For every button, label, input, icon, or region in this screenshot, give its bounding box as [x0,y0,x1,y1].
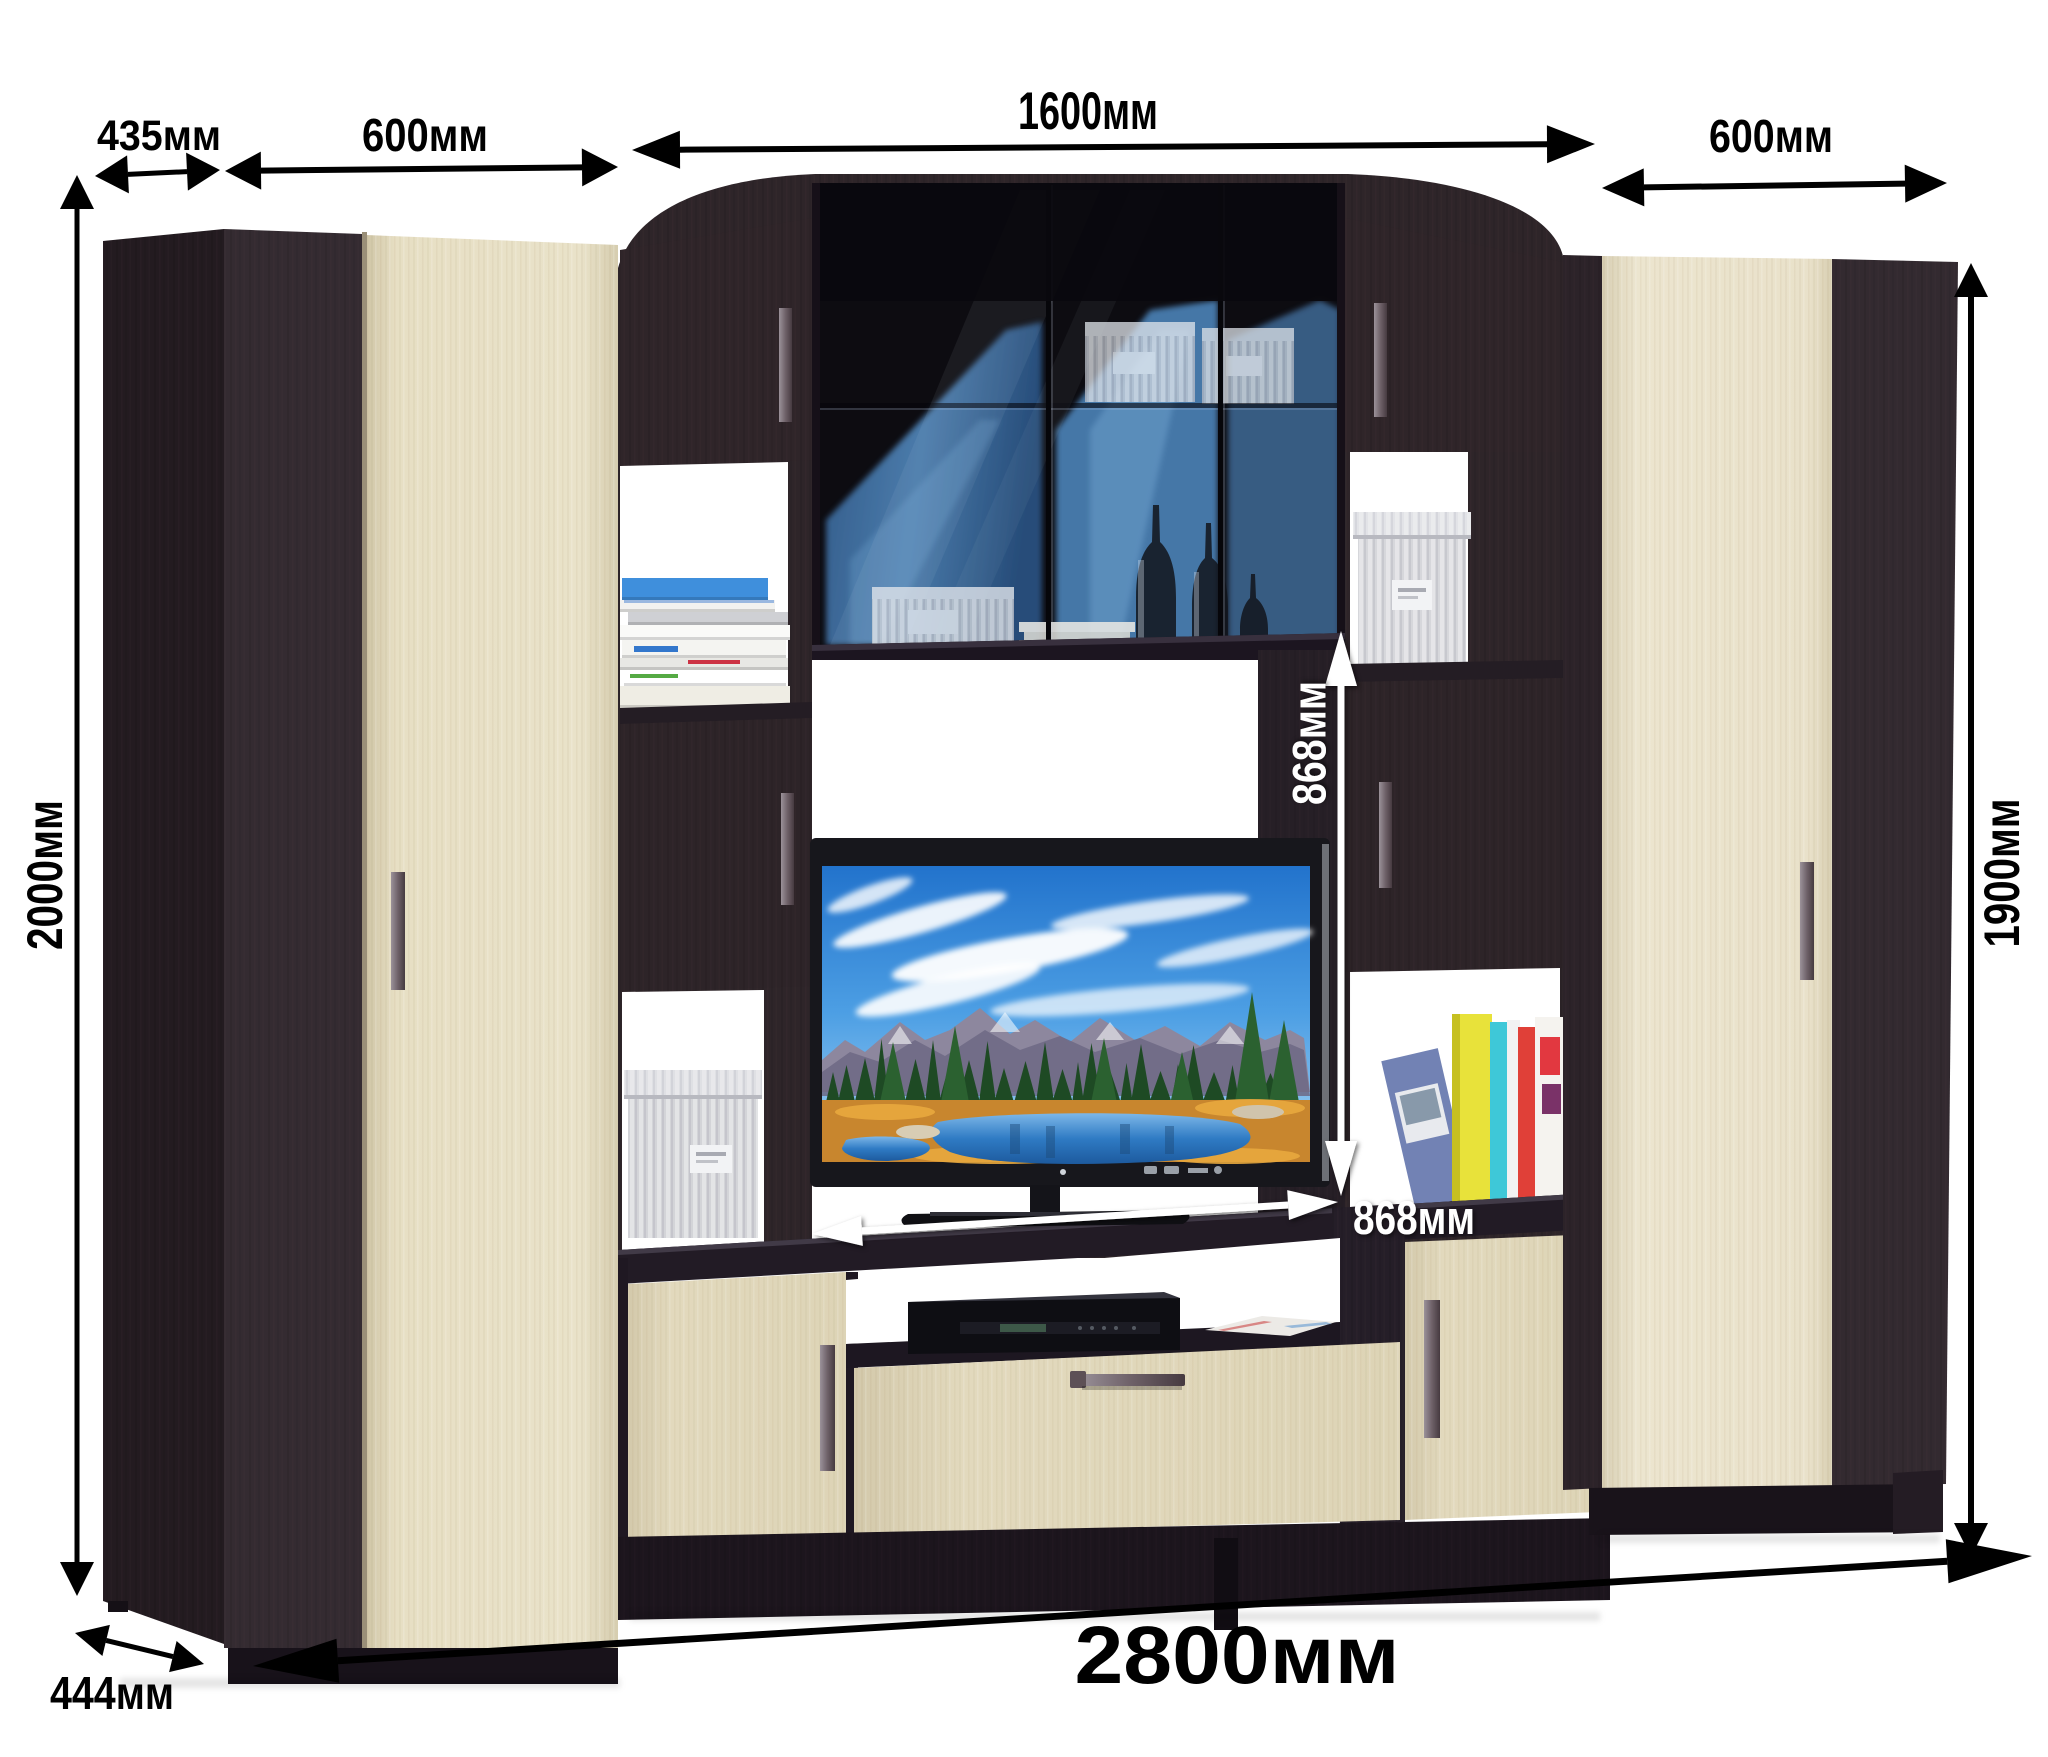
svg-text:600мм: 600мм [1709,110,1833,162]
svg-text:868мм: 868мм [1283,681,1336,805]
svg-text:868мм: 868мм [1353,1191,1475,1244]
svg-text:600мм: 600мм [362,109,488,161]
svg-text:444мм: 444мм [50,1667,174,1719]
svg-text:1900мм: 1900мм [1974,799,2030,948]
svg-text:1600мм: 1600мм [1018,82,1158,141]
svg-text:435мм: 435мм [97,112,221,160]
svg-text:2000мм: 2000мм [17,800,73,950]
svg-text:2800мм: 2800мм [1075,1610,1400,1701]
